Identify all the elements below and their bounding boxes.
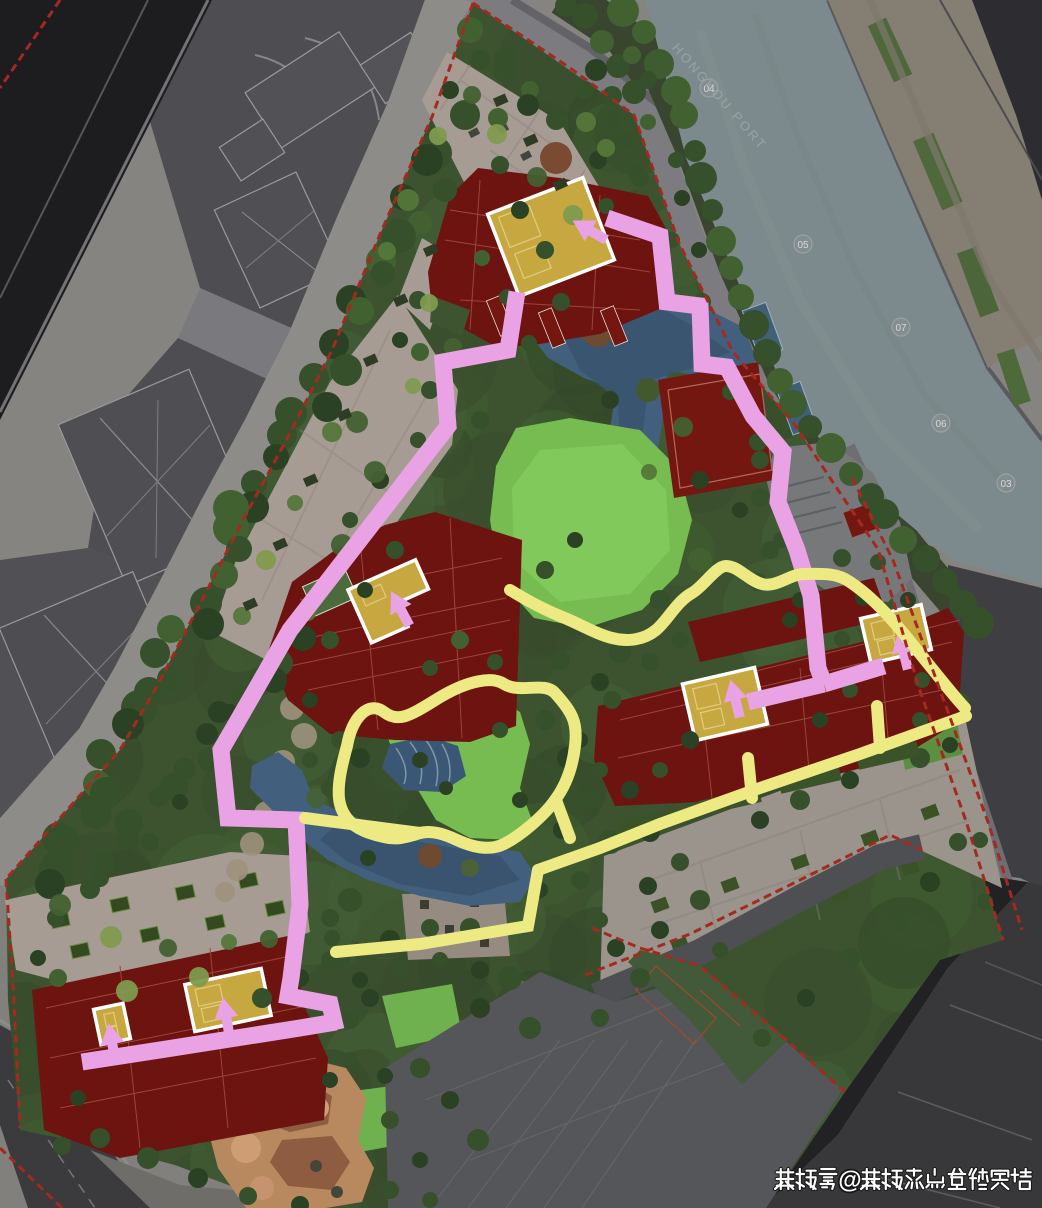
svg-text:03: 03 [1000, 479, 1012, 490]
svg-text:@: @ [838, 1167, 861, 1194]
svg-text:07: 07 [895, 323, 907, 334]
svg-text:05: 05 [797, 240, 809, 251]
svg-text:06: 06 [935, 419, 947, 430]
